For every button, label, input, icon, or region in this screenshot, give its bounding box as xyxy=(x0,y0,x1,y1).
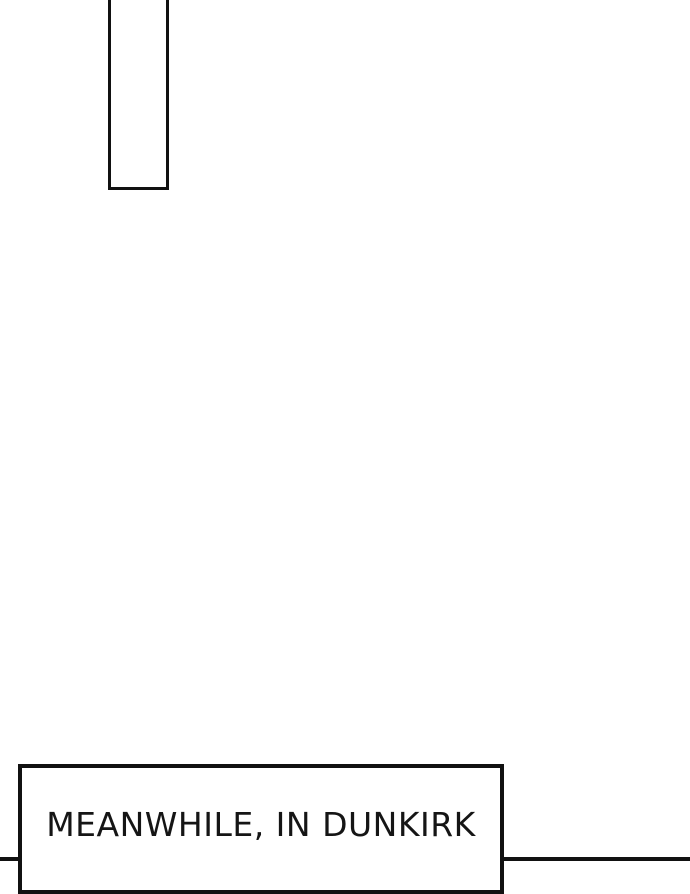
top-panel-outline xyxy=(108,0,169,190)
caption-text: MEANWHILE, IN DUNKIRK xyxy=(22,805,500,845)
caption-box: MEANWHILE, IN DUNKIRK xyxy=(18,764,504,894)
comic-page: { "page": { "background_color": "#ffffff… xyxy=(0,0,690,863)
